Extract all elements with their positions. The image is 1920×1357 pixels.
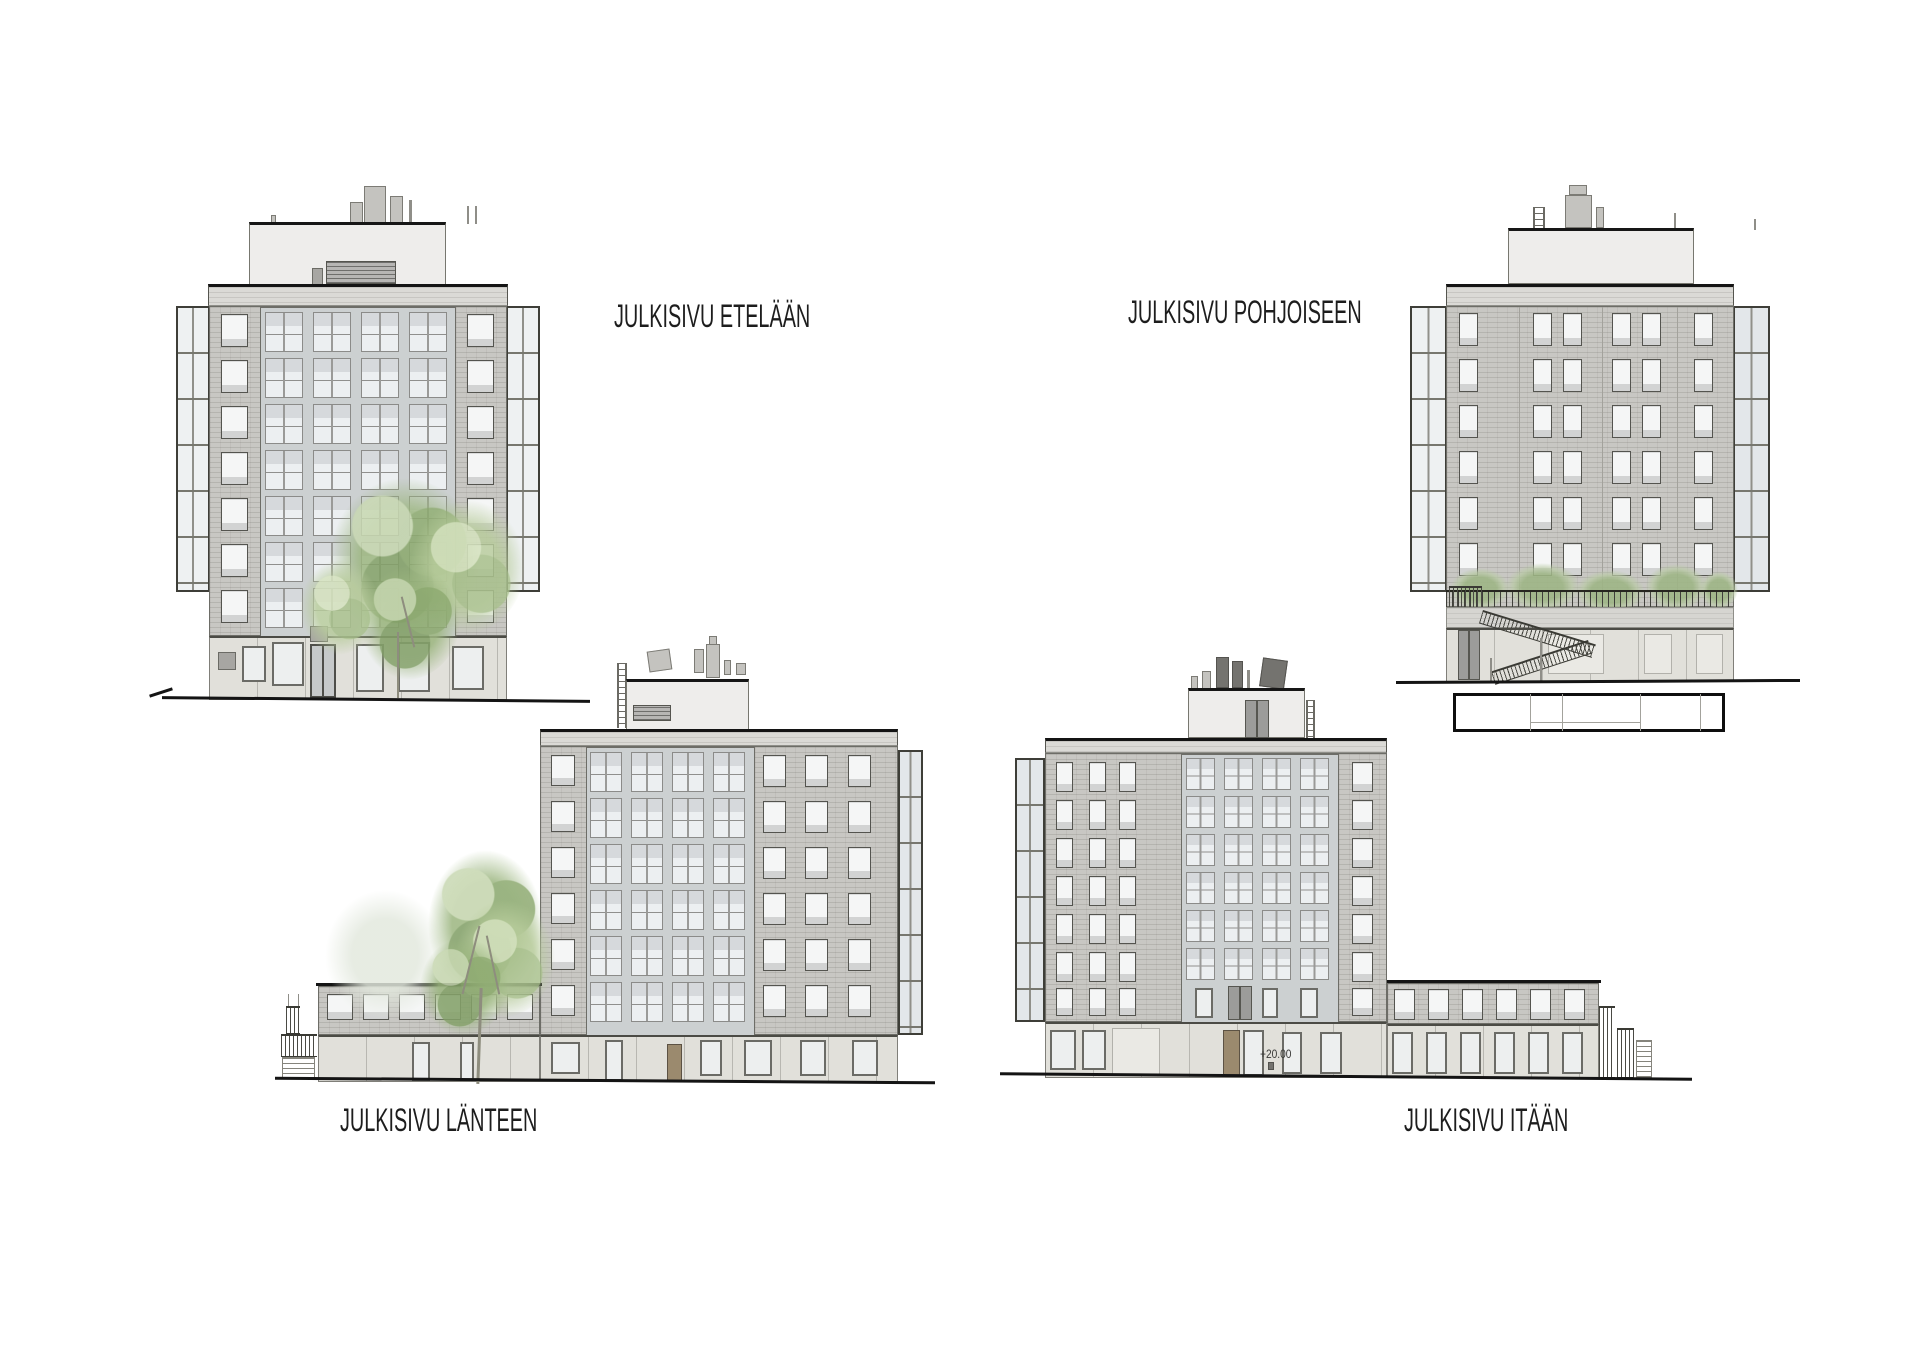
label-west-elevation: JULKISIVU LÄNTEEN [340,1102,537,1139]
storefront-window [1562,1032,1583,1074]
window [1119,838,1136,868]
pipe [1247,670,1250,688]
storefront-window [1300,988,1318,1018]
window [1089,988,1106,1016]
storefront-window [1082,1030,1106,1070]
window [1352,876,1373,906]
rooftop-equipment-dark [1259,657,1288,689]
level-marker [1268,1062,1274,1070]
storefront-window [1494,1032,1515,1074]
window [1119,914,1136,944]
glazed-wing [1015,758,1045,1022]
metal-door [1245,700,1269,738]
glazed-window-cell [1186,796,1215,828]
wood-door [1223,1030,1240,1076]
stair-steps [1636,1040,1652,1078]
glazed-window-cell [1262,872,1291,904]
label-east-elevation: JULKISIVU ITÄÄN [1404,1102,1568,1139]
stair-railing [1617,1028,1634,1078]
glazed-window-cell [1262,910,1291,942]
window [1089,762,1106,792]
glazed-window-cell [1186,834,1215,866]
window [1352,988,1373,1016]
window [1119,988,1136,1016]
window [1530,989,1551,1020]
window [1056,952,1073,982]
glazed-window-cell [1224,872,1253,904]
window [1056,762,1073,792]
glazed-window-cell [1262,796,1291,828]
entry-level-annotation: +20.00 [1260,1047,1291,1061]
glazed-window-cell [1186,948,1215,980]
label-north-elevation: JULKISIVU POHJOISEEN [1128,294,1362,331]
window [1352,914,1373,944]
glazed-window-cell [1186,872,1215,904]
storefront-window [1528,1032,1549,1074]
rooftop-equipment-dark [1232,661,1243,688]
window [1056,800,1073,830]
glazed-window-cell [1300,872,1329,904]
window [1089,838,1106,868]
rooftop-equipment-dark [1216,657,1229,688]
window [1428,989,1449,1020]
window [1089,800,1106,830]
storefront-window [1050,1030,1076,1070]
window [1496,989,1517,1020]
label-south-elevation: JULKISIVU ETELÄÄN [614,298,810,335]
window [1056,838,1073,868]
glazed-window-cell [1300,910,1329,942]
wall-panel [1112,1028,1160,1076]
window [1056,988,1073,1016]
window [1119,762,1136,792]
glazed-window-cell [1300,948,1329,980]
window [1089,876,1106,906]
storefront-window [1460,1032,1481,1074]
window [1119,800,1136,830]
glazed-window-cell [1262,948,1291,980]
window [1394,989,1415,1020]
window [1089,952,1106,982]
glazed-window-cell [1300,834,1329,866]
window [1352,838,1373,868]
storefront-window [1320,1032,1342,1074]
glazed-window-cell [1224,910,1253,942]
storefront-window [1195,988,1213,1018]
east-elevation-drawing [0,0,1920,1357]
window [1462,989,1483,1020]
window [1352,800,1373,830]
glazed-window-cell [1224,758,1253,790]
glazed-window-cell [1186,758,1215,790]
glazed-window-cell [1186,910,1215,942]
glazed-window-cell [1262,834,1291,866]
glazed-window-cell [1224,834,1253,866]
roof-ladder [1306,700,1315,738]
window [1056,914,1073,944]
glazed-window-cell [1300,758,1329,790]
glazed-window-cell [1262,758,1291,790]
window [1119,952,1136,982]
window [1056,876,1073,906]
window [1119,876,1136,906]
stair-railing [1599,1006,1615,1078]
window [1089,914,1106,944]
facade-elevation-sheet: JULKISIVU ETELÄÄN JULKISIVU POHJOISEEN J… [0,0,1920,1357]
metal-door [1228,986,1252,1020]
window [1352,952,1373,982]
window [1352,762,1373,792]
roof-band [1045,738,1387,753]
glazed-window-cell [1224,948,1253,980]
storefront-window [1392,1032,1413,1074]
glazed-window-cell [1300,796,1329,828]
storefront-window [1426,1032,1447,1074]
window [1564,989,1585,1020]
storefront-window [1262,988,1278,1018]
glazed-window-cell [1224,796,1253,828]
